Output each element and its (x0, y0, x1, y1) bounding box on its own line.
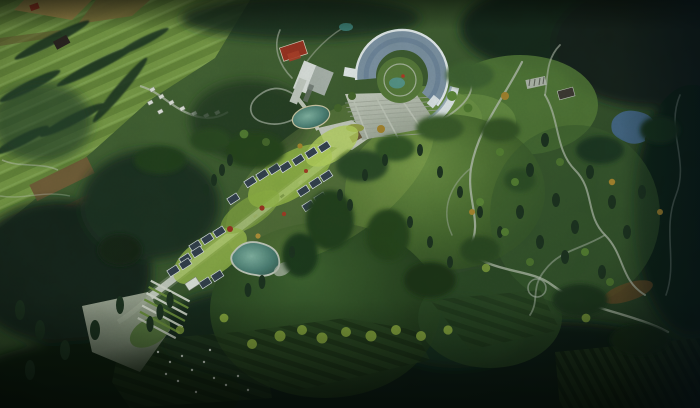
aerial-masterplan-rendering (0, 0, 700, 408)
vignette (0, 0, 700, 408)
masterplan-canvas (0, 0, 700, 408)
